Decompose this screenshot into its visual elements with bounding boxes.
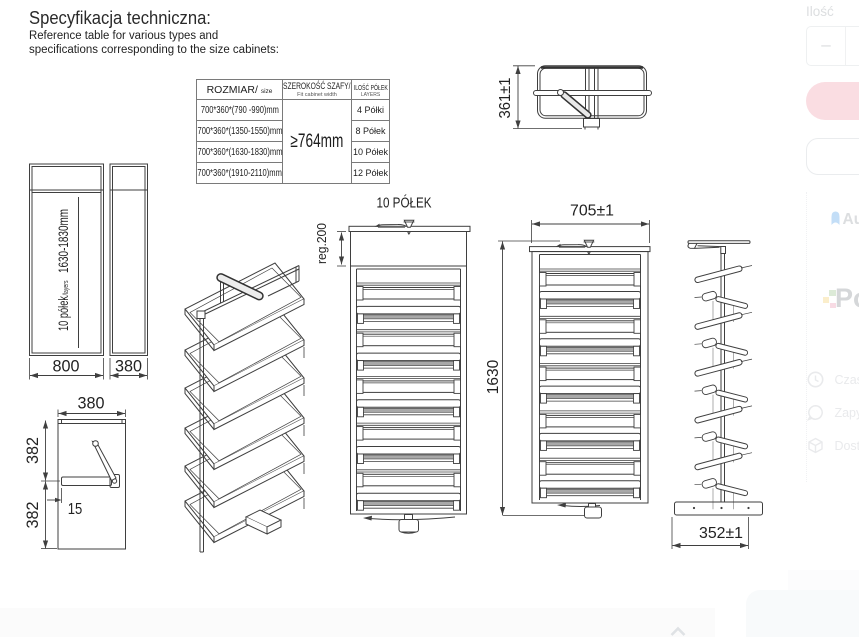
svg-text:382: 382 <box>23 437 42 464</box>
svg-text:382: 382 <box>23 502 42 529</box>
svg-text:1630-1830mm: 1630-1830mm <box>56 209 71 273</box>
svg-text:Au: Au <box>843 211 859 228</box>
svg-text:800: 800 <box>53 357 80 376</box>
svg-text:reg.200: reg.200 <box>314 223 329 264</box>
svg-text:/layers: /layers <box>63 280 70 295</box>
svg-text:380: 380 <box>115 357 142 376</box>
svg-text:15: 15 <box>68 501 83 518</box>
svg-text:352±1: 352±1 <box>699 525 743 542</box>
svg-text:1630: 1630 <box>485 359 502 394</box>
svg-text:705±1: 705±1 <box>570 203 614 220</box>
svg-text:10 półek: 10 półek <box>56 296 71 331</box>
svg-text:380: 380 <box>78 394 105 413</box>
svg-text:361±1: 361±1 <box>497 78 514 119</box>
svg-text:10 PÓŁEK: 10 PÓŁEK <box>377 195 432 212</box>
